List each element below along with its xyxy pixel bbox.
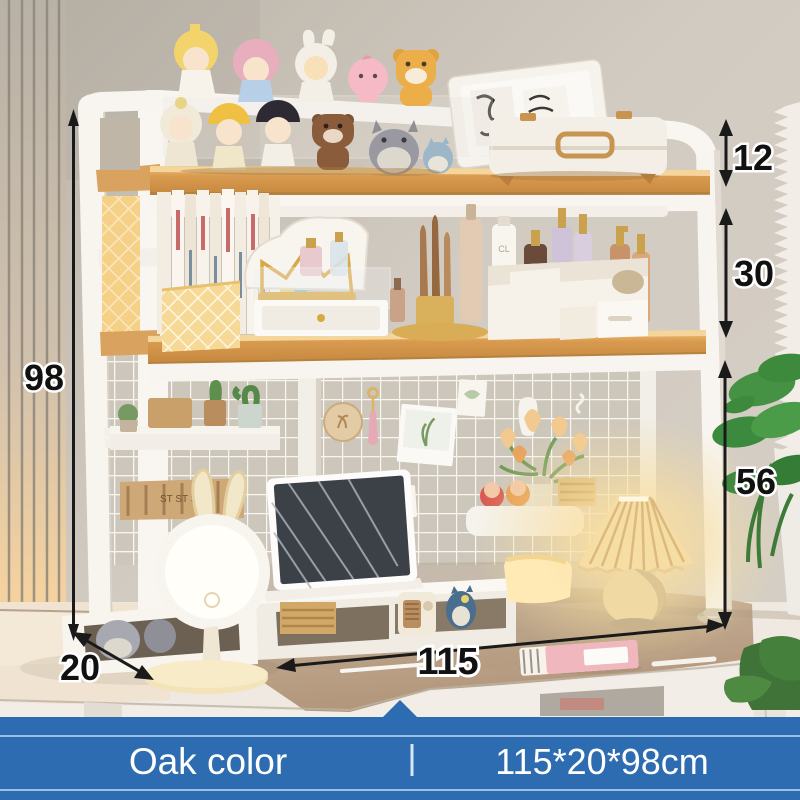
svg-text:12: 12	[733, 137, 773, 178]
svg-text:56: 56	[736, 461, 776, 502]
svg-text:115: 115	[417, 641, 478, 683]
svg-text:20: 20	[60, 647, 100, 688]
svg-text:98: 98	[24, 357, 64, 398]
svg-text:CL: CL	[498, 244, 510, 254]
svg-text:Oak color: Oak color	[129, 741, 287, 782]
svg-text:115*20*98cm: 115*20*98cm	[495, 741, 709, 782]
svg-text:30: 30	[734, 253, 774, 294]
